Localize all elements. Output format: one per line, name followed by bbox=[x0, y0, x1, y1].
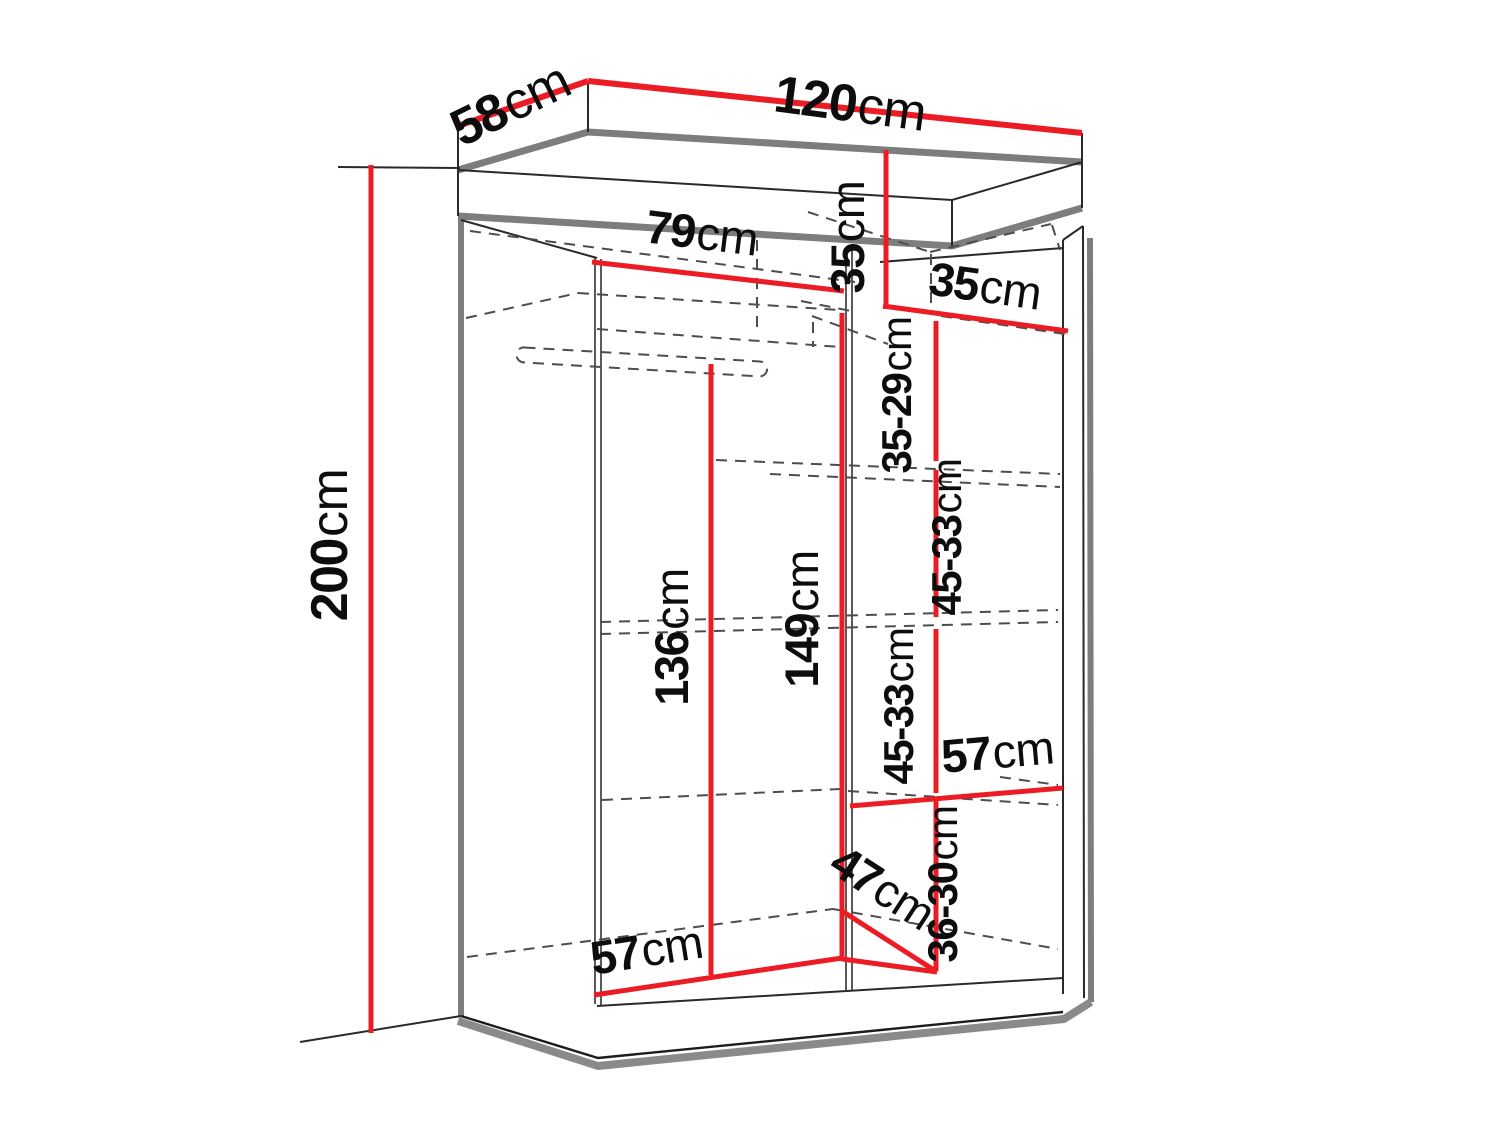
dim-label-136: 136cm bbox=[645, 568, 698, 706]
dim-label-120: 120cm bbox=[771, 65, 930, 142]
dim-label-45-33-upper: 45-33cm bbox=[923, 459, 970, 616]
dim-label-35-vert: 35cm bbox=[821, 181, 874, 294]
top-shelf-side-dash bbox=[466, 293, 578, 318]
cubby-right-dash bbox=[1052, 225, 1060, 250]
shelf2-front-dash bbox=[770, 474, 1060, 487]
top-shelf-front-dash bbox=[597, 329, 840, 347]
cubby-shelf-left-dash bbox=[801, 301, 856, 312]
wardrobe-dimension-diagram: 58cm 120cm 200cm 79cm 35cm 35cm 35-29cm … bbox=[0, 0, 1500, 1125]
dim-label-35-29: 35-29cm bbox=[873, 317, 920, 474]
dim-label-35-horiz: 35cm bbox=[926, 252, 1045, 320]
shelf4-left-dash bbox=[602, 789, 840, 800]
dim-line-79 bbox=[592, 262, 844, 291]
dim-label-200: 200cm bbox=[301, 469, 359, 622]
diagram-stage: 58cm 120cm 200cm 79cm 35cm 35cm 35-29cm … bbox=[0, 0, 1500, 1125]
dim-line-57-right bbox=[850, 788, 1063, 806]
dim-label-57-right: 57cm bbox=[939, 720, 1056, 783]
shelf4-back-dash bbox=[1000, 777, 1058, 785]
dim-label-45-33-lower: 45-33cm bbox=[875, 628, 922, 785]
wardrobe-top-panel bbox=[458, 132, 1082, 246]
base-shadow bbox=[458, 1002, 1091, 1066]
right-panel-top-edge bbox=[1063, 226, 1083, 240]
hidden-edges bbox=[466, 212, 1065, 957]
right-panel-shadow bbox=[1090, 238, 1091, 1002]
hanging-rod bbox=[516, 347, 767, 377]
top-shelf-back-dash bbox=[578, 293, 840, 310]
floor-line-left bbox=[300, 1016, 461, 1042]
height-tick-top bbox=[338, 167, 460, 168]
right-panel-outer-edge bbox=[1083, 226, 1084, 998]
dim-label-57-bottom: 57cm bbox=[586, 915, 706, 985]
dim-label-149: 149cm bbox=[775, 550, 828, 688]
